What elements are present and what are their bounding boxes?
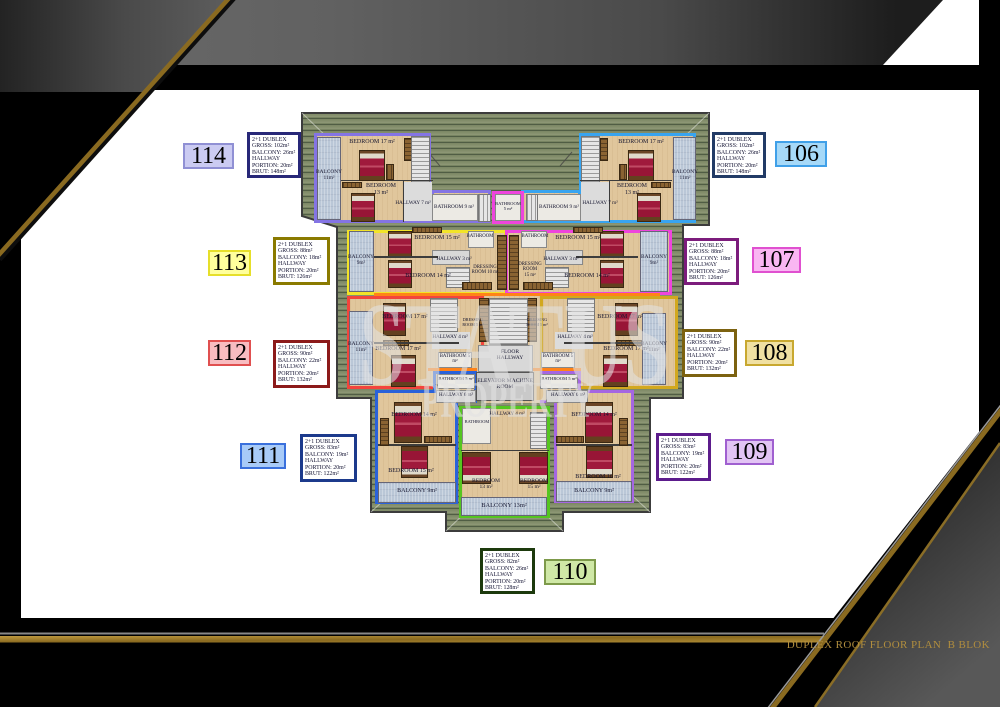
svg-text:DUPLEX ROOF FLOOR PLAN B BLOK: DUPLEX ROOF FLOOR PLAN B BLOK (787, 639, 990, 651)
